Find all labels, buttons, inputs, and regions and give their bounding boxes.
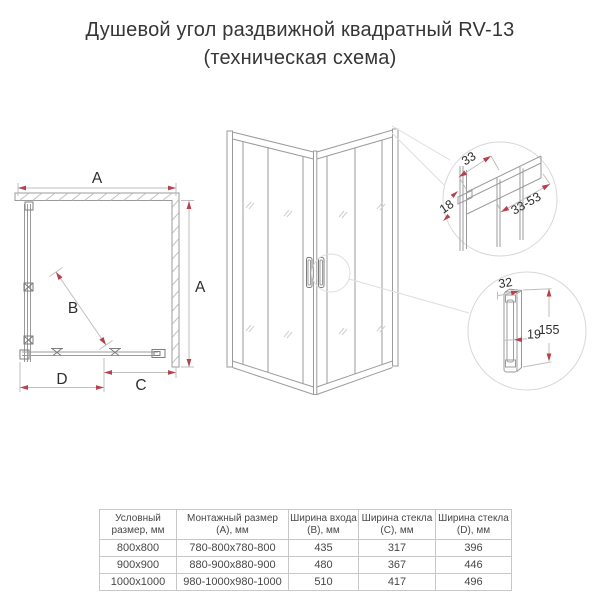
isometric-view [227,126,469,395]
table-cell: 367 [359,557,436,574]
table-cell: 417 [359,574,436,591]
handle-focus-ring [312,254,350,292]
table-cell: 980-1000x980-1000 [177,574,289,591]
table-row: 900x900 880-900x880-900 480 367 446 [100,557,512,574]
dimension-d: D [20,362,104,392]
dim-label-155: 155 [539,323,560,337]
table-cell: 510 [289,574,359,591]
size-table: Условный размер, мм Монтажный размер (A)… [99,509,512,591]
table-cell: 317 [359,540,436,557]
header-glass-width-d: Ширина стекла (D), мм [436,510,512,540]
table-row: 800x800 780-800x780-800 435 317 396 [100,540,512,557]
table-cell: 480 [289,557,359,574]
table-row: 1000x1000 980-1000x980-1000 510 417 496 [100,574,512,591]
wall-hatch-right [172,200,178,363]
door-roller [24,283,33,291]
dimension-a-top: A [18,170,176,196]
dimension-a-right: A [181,201,206,368]
detail-handle-callout: 32 19 155 [468,272,586,390]
header-mounting-size: Монтажный размер (A), мм [177,510,289,540]
table-cell: 446 [436,557,512,574]
header-glass-width-c: Ширина стекла (C), мм [359,510,436,540]
top-view-diagram: A A B C D [15,170,206,394]
dim-label-d: D [56,371,67,388]
table-cell: 780-800x780-800 [177,540,289,557]
dim-label-32: 32 [497,275,513,291]
header-nominal-size: Условный размер, мм [100,510,177,540]
dim-label-b: B [68,300,78,317]
detail-profile-callout: 33 18 33-53 [437,142,557,256]
table-cell: 396 [436,540,512,557]
table-cell: 880-900x880-900 [177,557,289,574]
table-cell: 435 [289,540,359,557]
dimension-b: B [49,268,112,350]
table-cell: 900x900 [100,557,177,574]
dim-label-a-right: A [195,279,206,296]
table-cell: 496 [436,574,512,591]
table-header-row: Условный размер, мм Монтажный размер (A)… [100,510,512,540]
walls-outline [15,193,179,367]
header-entry-width: Ширина входа (B), мм [289,510,359,540]
dim-label-a-top: A [92,170,103,187]
dimension-c: C [104,358,176,394]
glass-sparkles [246,202,385,338]
table-cell: 800x800 [100,540,177,557]
dim-label-c: C [135,377,146,394]
left-door-plan [24,202,33,362]
door-roller [24,336,33,344]
table-cell: 1000x1000 [100,574,177,591]
bottom-door-plan [20,349,165,360]
wall-hatch-top [20,194,172,201]
